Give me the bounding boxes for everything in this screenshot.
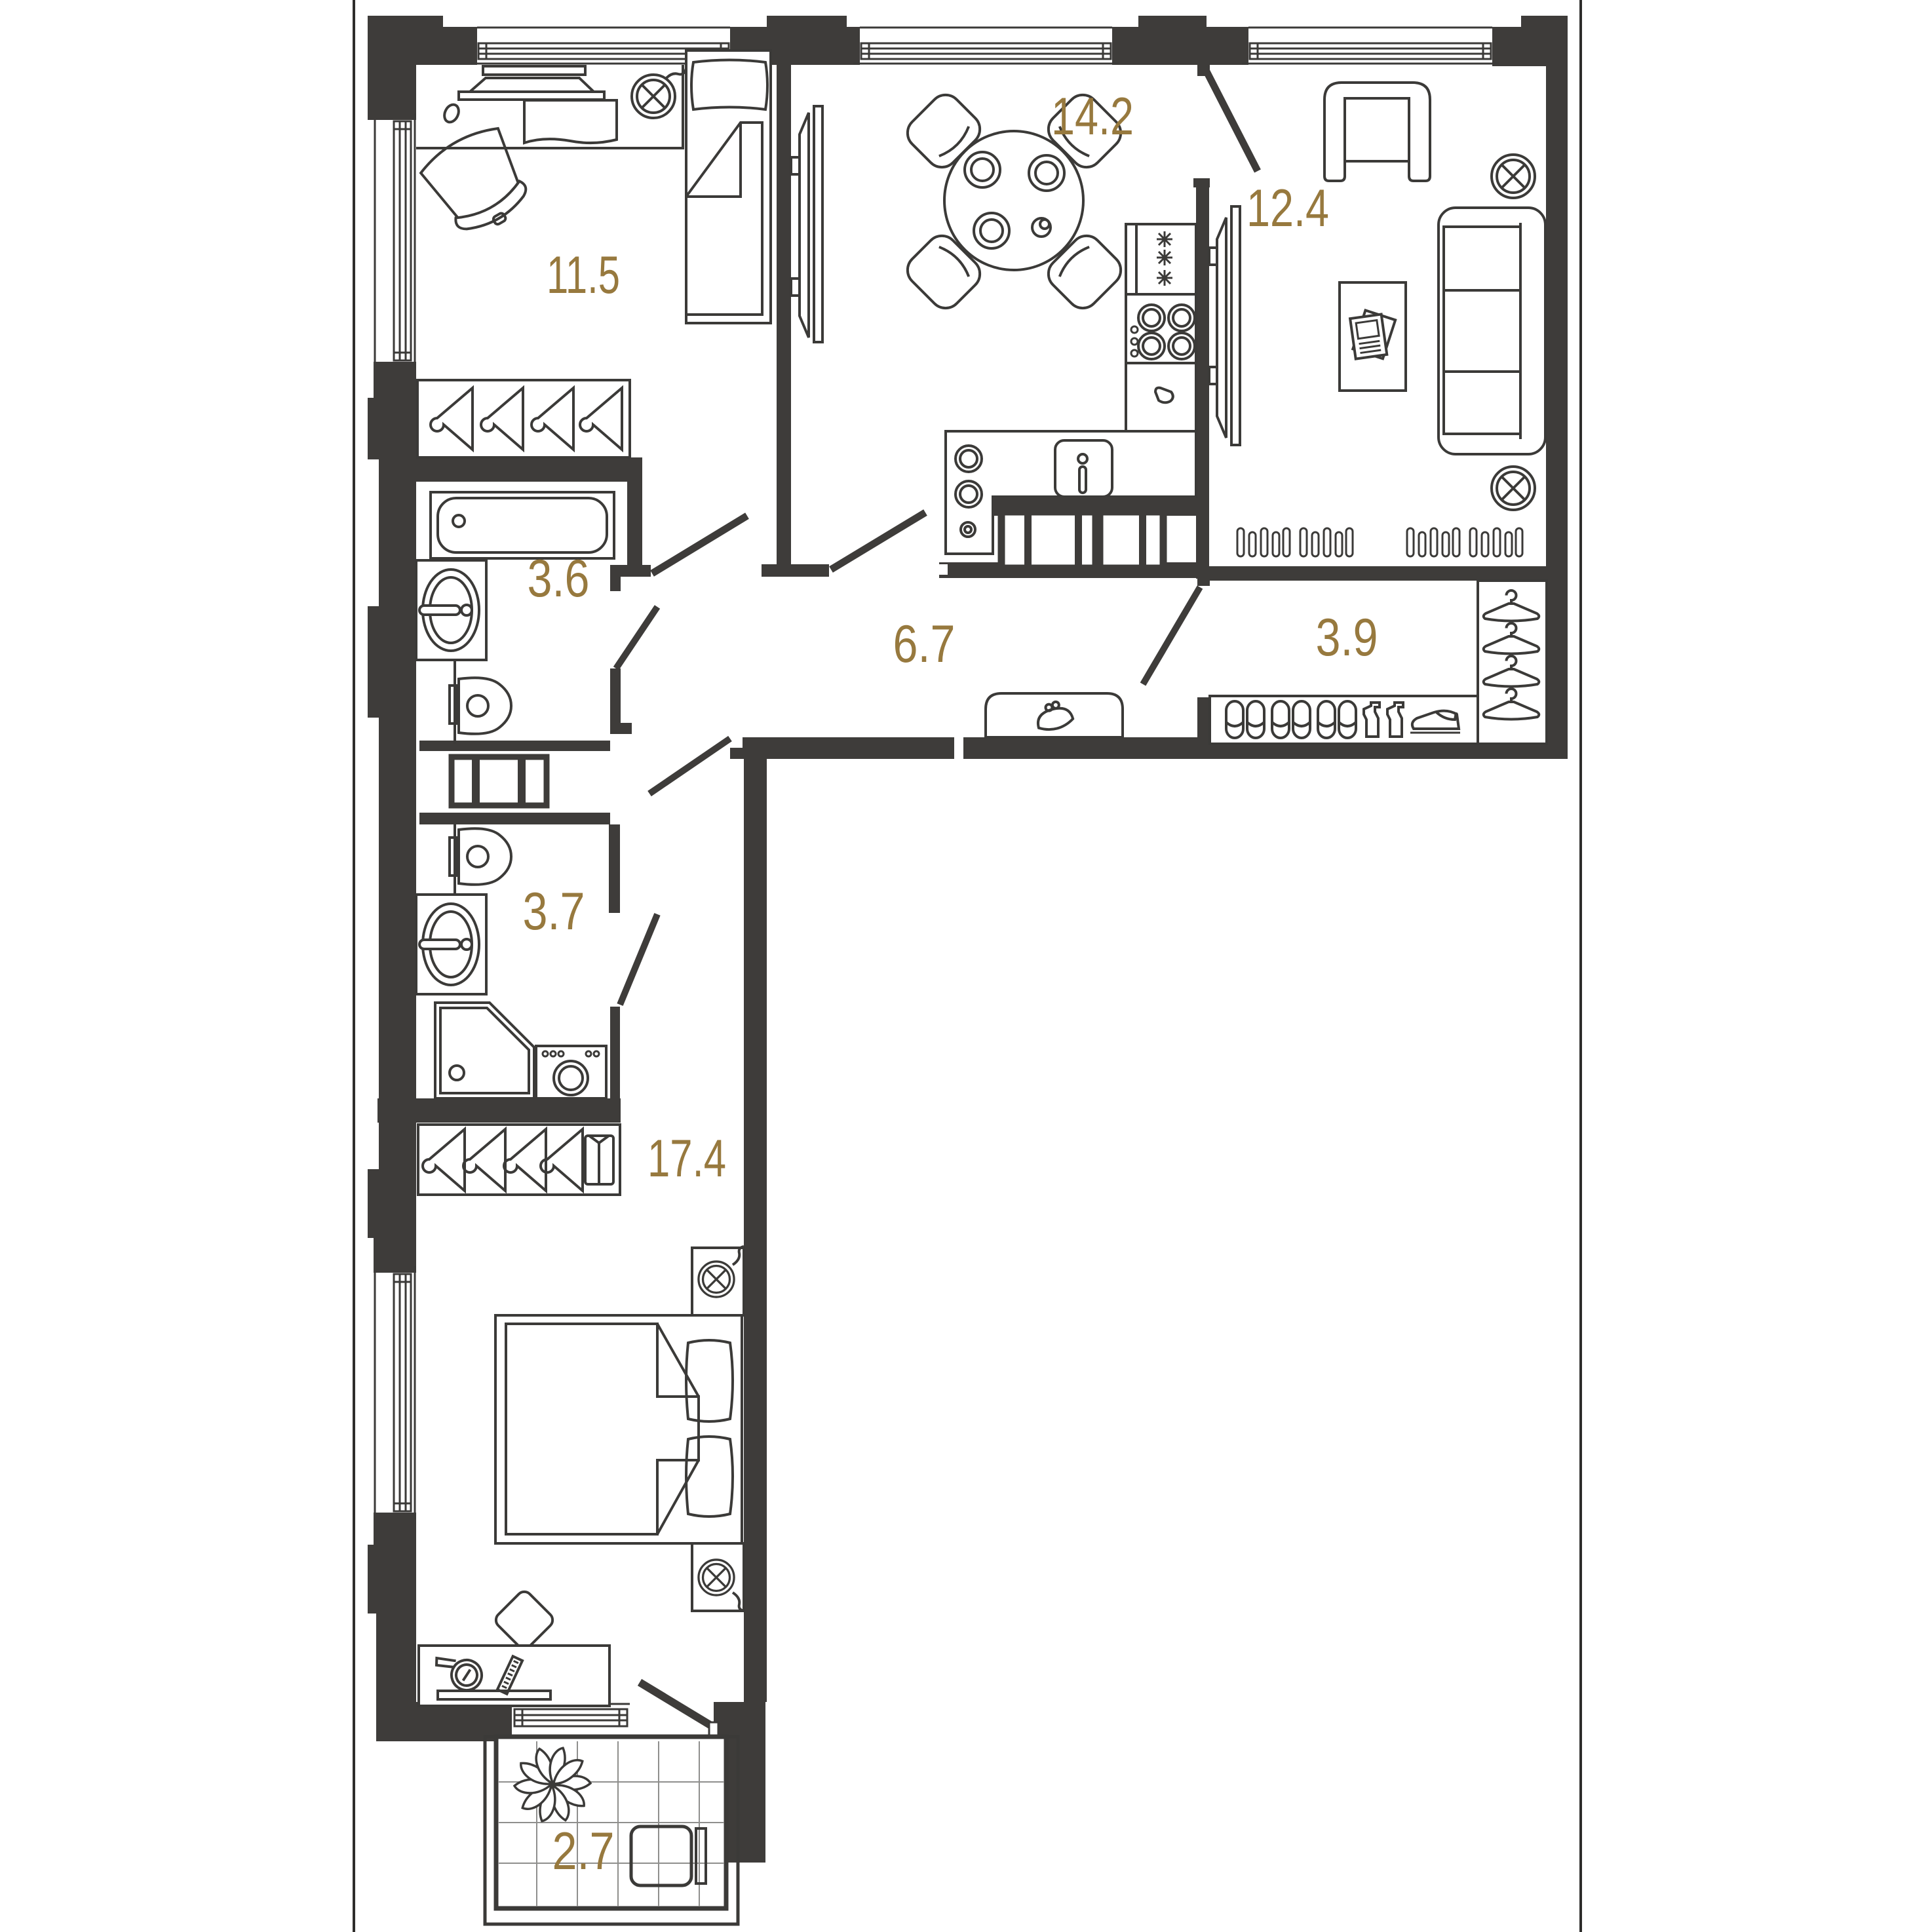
svg-text:17.4: 17.4 — [647, 1129, 726, 1188]
svg-text:6.7: 6.7 — [893, 615, 956, 674]
svg-text:3.7: 3.7 — [523, 882, 585, 941]
svg-text:3.6: 3.6 — [528, 549, 590, 608]
svg-text:12.4: 12.4 — [1246, 179, 1329, 238]
svg-text:2.7: 2.7 — [552, 1822, 615, 1881]
svg-text:11.5: 11.5 — [547, 246, 620, 305]
svg-text:14.2: 14.2 — [1051, 87, 1134, 146]
svg-text:3.9: 3.9 — [1316, 608, 1378, 667]
